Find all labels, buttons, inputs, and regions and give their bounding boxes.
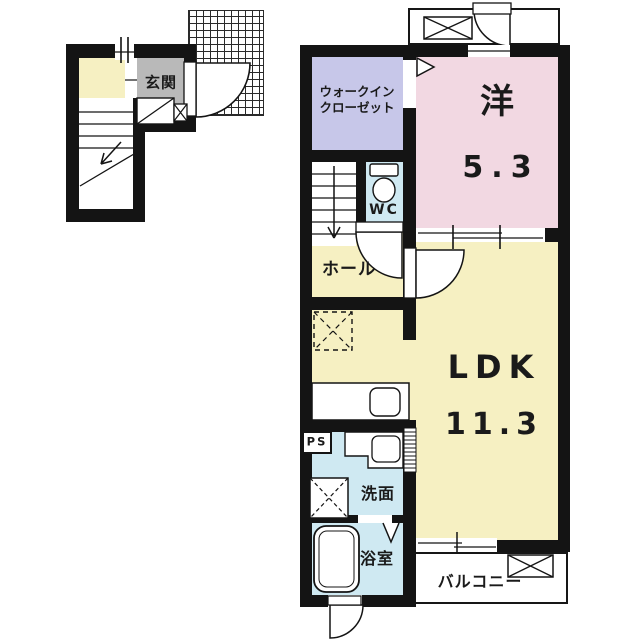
bathtub-icon [314, 526, 359, 592]
western-room-size: 5.3 [462, 153, 539, 183]
wc-label: WC [369, 203, 399, 217]
balcony-sliding-window-icon [416, 532, 497, 554]
ldk-label: LDK [448, 351, 541, 383]
walk-in-closet-label-line1: ウォークイン [319, 86, 394, 99]
toilet-icon [370, 164, 398, 202]
accordion-door-icon [404, 428, 416, 472]
f2-stairs-icon [312, 166, 356, 238]
entrance-label: 玄関 [145, 76, 177, 91]
hall-label: ホール [322, 262, 376, 279]
upper-balcony-x-box-icon [424, 17, 472, 39]
f1-window-mark-icon [115, 37, 134, 63]
walk-in-closet-label-line2: クローゼット [319, 102, 394, 115]
bathroom-label: 浴室 [360, 551, 394, 567]
f1-x-box-icon [174, 104, 187, 121]
balcony-door-arc-icon [468, 3, 511, 57]
f1-stairs-icon [79, 112, 134, 186]
room-sliding-door-icon [418, 225, 543, 249]
bath-folding-door-icon [358, 515, 399, 542]
closet-opening-icon [403, 58, 434, 108]
ldk-size: 11.3 [445, 410, 543, 440]
western-room-label: 洋 [480, 85, 514, 119]
pipe-space-label: PS [307, 436, 328, 448]
balcony-label: バルコニー [438, 574, 523, 590]
washing-machine-box-icon [310, 478, 348, 518]
washroom-label: 洗面 [361, 486, 395, 502]
shoe-cabinet-icon [137, 98, 174, 124]
vanity-sink-icon [345, 432, 403, 468]
kitchen-counter-icon [312, 383, 409, 420]
bottom-door-arc-icon [328, 595, 363, 638]
entrance-door-arc-icon [184, 62, 250, 117]
floor-plan: 玄関 ウォークイン クローゼット 洋 5.3 WC ホール LDK 11.3 P… [0, 0, 640, 640]
stairwell-void-box-icon [314, 312, 352, 350]
ldk-door-arc-icon [404, 248, 464, 298]
